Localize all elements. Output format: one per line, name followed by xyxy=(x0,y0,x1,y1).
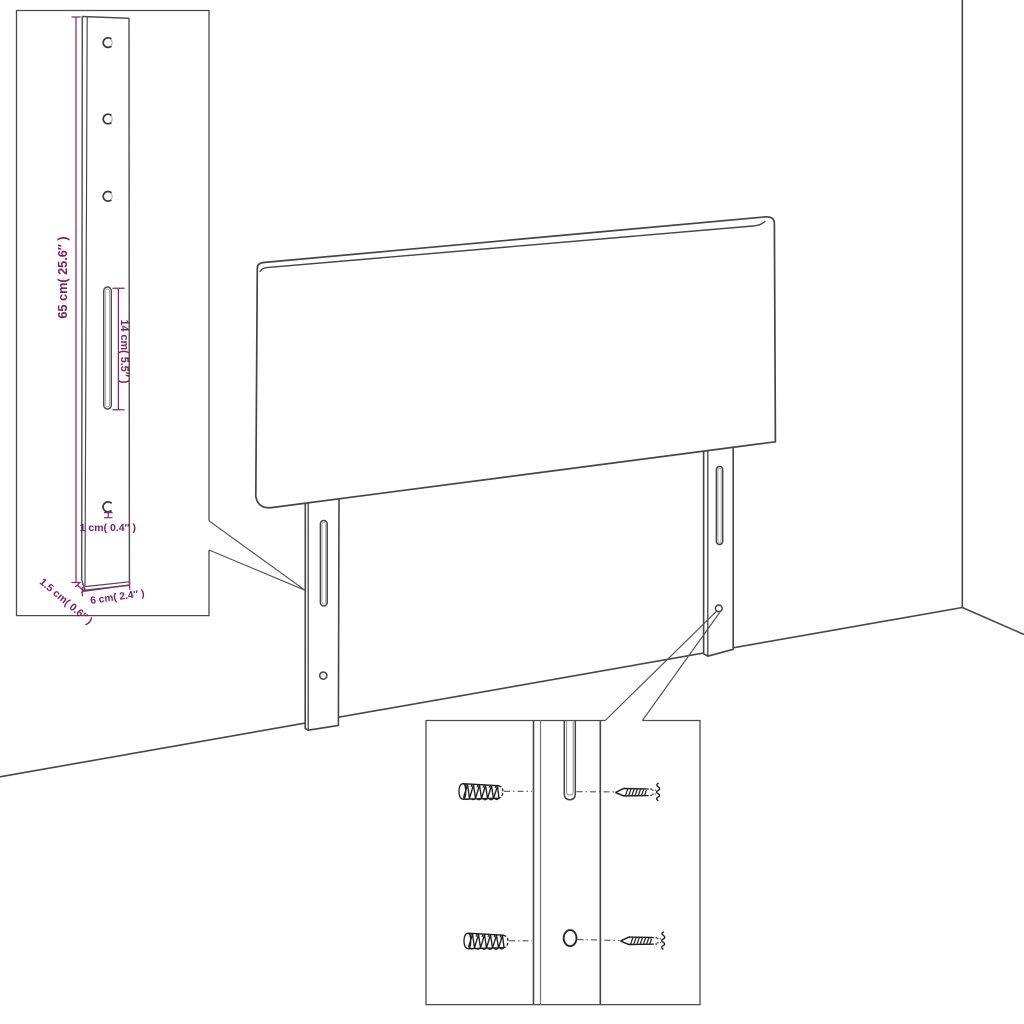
svg-text:65 cm( 25.6″ ): 65 cm( 25.6″ ) xyxy=(56,236,70,318)
svg-text:14 cm( 5.5″ ): 14 cm( 5.5″ ) xyxy=(118,320,130,384)
svg-text:1 cm( 0.4″ ): 1 cm( 0.4″ ) xyxy=(80,522,136,534)
